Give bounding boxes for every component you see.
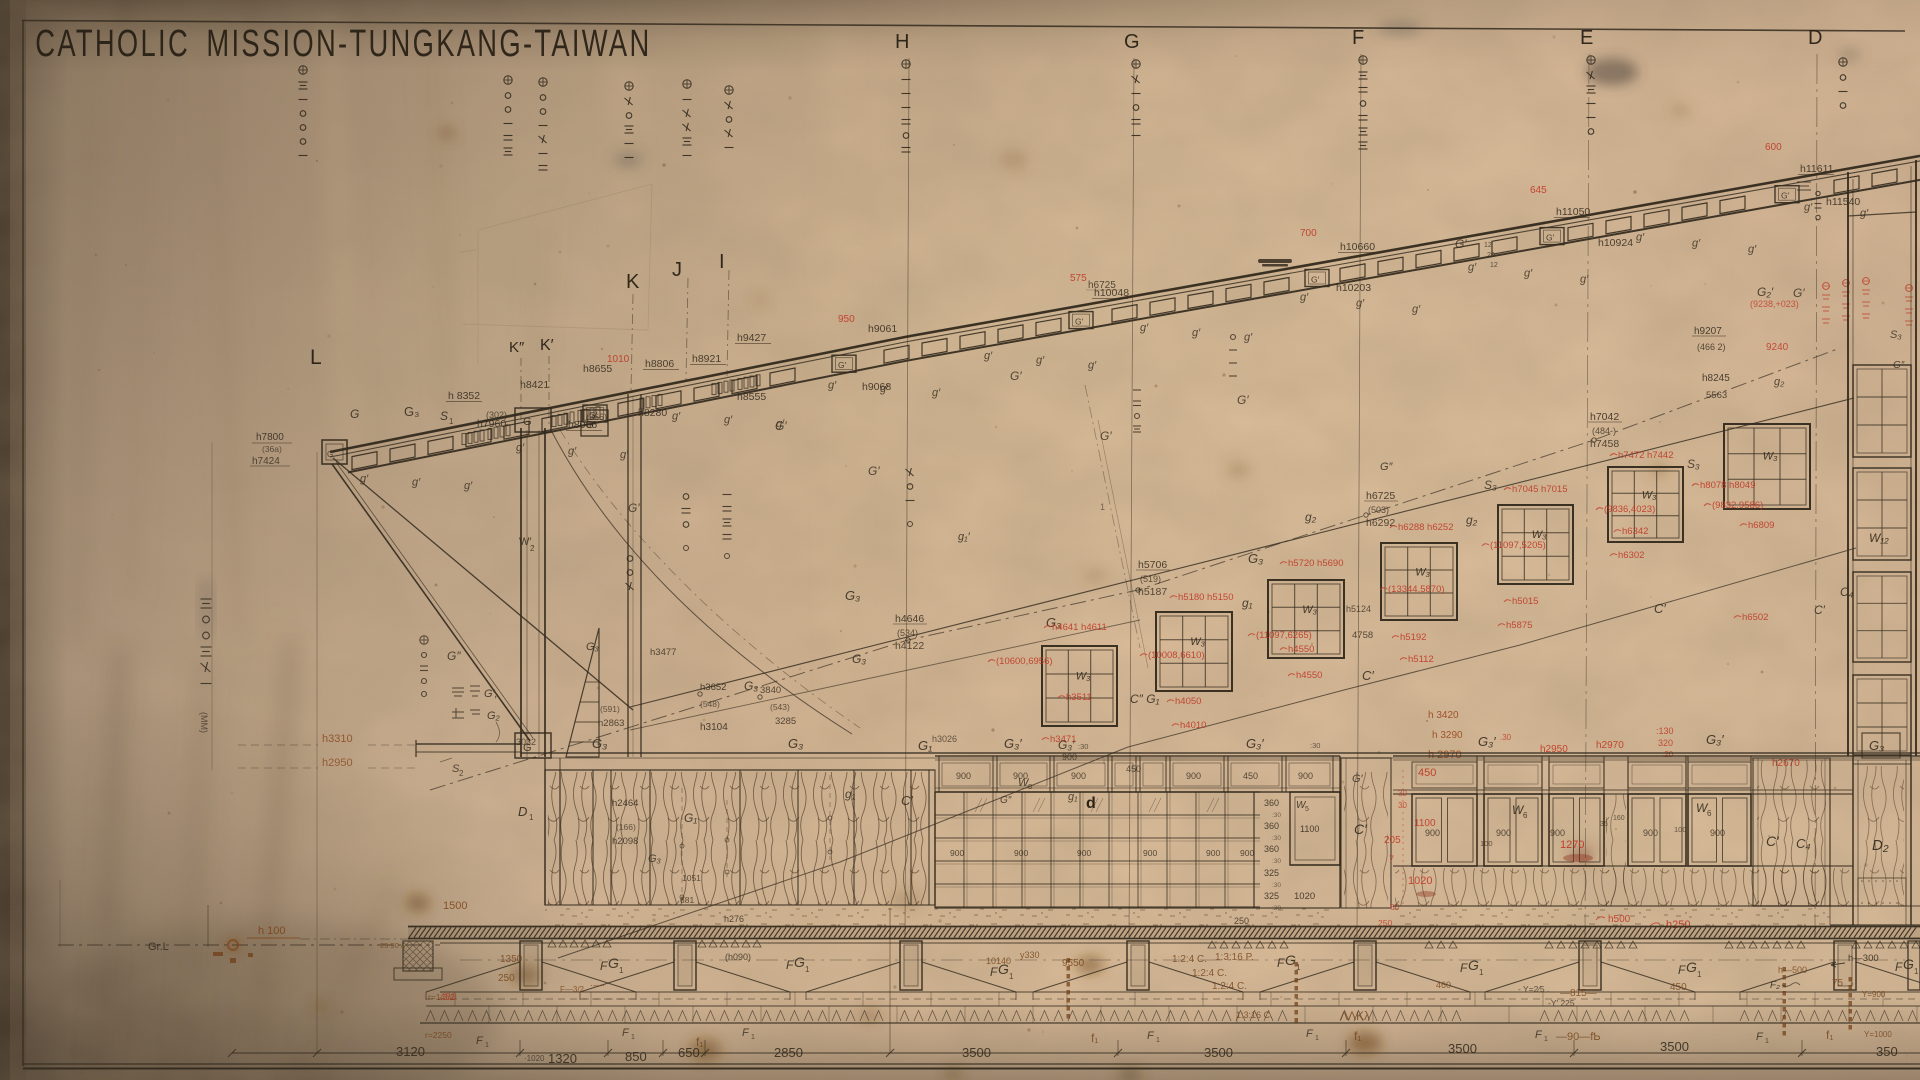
svg-text:10140: 10140: [986, 956, 1011, 966]
svg-text:G: G: [350, 407, 362, 421]
svg-text:h4550: h4550: [1296, 670, 1322, 681]
svg-text:g₂: g₂: [1466, 513, 1478, 527]
svg-text:3120: 3120: [396, 1044, 425, 1059]
svg-text:g′: g′: [1748, 244, 1757, 256]
svg-text:Y=1000: Y=1000: [1864, 1030, 1892, 1039]
svg-text:h11540: h11540: [1826, 196, 1860, 208]
svg-text:450: 450: [1418, 767, 1436, 779]
svg-text:6: 6: [1707, 809, 1712, 818]
svg-text:h4010: h4010: [1180, 720, 1206, 731]
svg-text:-Y′ 225: -Y′ 225: [1548, 998, 1575, 1008]
svg-text:G′: G′: [1010, 369, 1022, 383]
svg-text:W₁₂: W₁₂: [1869, 531, 1889, 545]
svg-text:g′: g′: [1636, 232, 1645, 244]
svg-text:G′: G′: [1311, 275, 1320, 285]
svg-text:G₃: G₃: [744, 679, 758, 693]
svg-text::30: :30: [1272, 812, 1281, 819]
svg-text:W₃: W₃: [1415, 566, 1430, 578]
svg-text:K: K: [626, 271, 640, 293]
svg-text:h10924: h10924: [1598, 237, 1633, 249]
svg-text:G: G: [523, 416, 532, 428]
svg-text:G₁: G₁: [918, 738, 932, 753]
svg-text:160: 160: [1613, 815, 1625, 822]
svg-text:1: 1: [619, 966, 624, 975]
svg-text:30: 30: [1398, 789, 1407, 798]
svg-text:(13344,5870): (13344,5870): [1388, 584, 1445, 595]
svg-text:681: 681: [680, 895, 694, 905]
svg-text:1100: 1100: [1414, 818, 1436, 829]
svg-text:h7424: h7424: [252, 456, 280, 467]
svg-text:450: 450: [1670, 982, 1687, 993]
svg-text:G′: G′: [1793, 286, 1805, 300]
svg-text:h9207: h9207: [1694, 326, 1722, 337]
svg-text:h9427: h9427: [737, 332, 766, 344]
svg-text:(MM): (MM): [199, 712, 209, 733]
svg-text:g₁: g₁: [845, 787, 856, 801]
svg-text:G″: G″: [447, 649, 461, 663]
svg-text:h8921: h8921: [692, 353, 721, 365]
svg-text:G′: G′: [868, 464, 880, 478]
svg-text:G′: G′: [1781, 191, 1790, 201]
svg-text:1: 1: [751, 1034, 755, 1041]
svg-text:C′: C′: [1354, 821, 1368, 837]
svg-text:(9836,4023): (9836,4023): [1604, 504, 1655, 515]
svg-text::30: :30: [1272, 835, 1281, 842]
svg-text:S₃: S₃: [1687, 457, 1700, 471]
svg-text:f₁: f₁: [1826, 1028, 1833, 1042]
svg-text:J: J: [672, 259, 682, 281]
svg-text:h6288 h6252: h6288 h6252: [1398, 522, 1453, 533]
svg-text:3840: 3840: [760, 685, 781, 696]
svg-text:(503): (503): [1368, 505, 1389, 515]
svg-text:12: 12: [1490, 262, 1498, 269]
svg-text:h5124: h5124: [1346, 604, 1371, 614]
svg-text:C₄: C₄: [1840, 585, 1854, 599]
svg-text:h8078 h8049: h8078 h8049: [1700, 480, 1755, 491]
svg-text:g′: g′: [1468, 262, 1477, 274]
svg-text:900: 900: [1186, 771, 1201, 781]
svg-text:G′: G′: [1100, 429, 1112, 443]
svg-text:450: 450: [1126, 764, 1141, 774]
svg-text:h5180 h5150: h5180 h5150: [1178, 592, 1233, 603]
svg-text:G: G: [586, 420, 594, 431]
svg-text:h5192: h5192: [1400, 632, 1426, 643]
svg-text:h7800: h7800: [256, 432, 284, 443]
svg-text:E: E: [1580, 27, 1593, 49]
svg-text:F: F: [1895, 960, 1903, 974]
svg-text:·1020: ·1020: [524, 1054, 545, 1063]
svg-text:G: G: [1686, 959, 1697, 975]
svg-text:F: F: [786, 958, 794, 972]
svg-text:g′: g′: [1244, 332, 1253, 344]
svg-text:g₁′: g₁′: [958, 531, 971, 543]
svg-text:h 2970: h 2970: [1428, 749, 1462, 761]
svg-text:1: 1: [1479, 968, 1484, 977]
svg-text:360: 360: [1264, 844, 1279, 854]
svg-text:h6725: h6725: [1366, 490, 1395, 502]
svg-text::30: :30: [1310, 741, 1320, 750]
svg-text:900: 900: [1643, 828, 1658, 838]
svg-text:1020: 1020: [1294, 891, 1315, 902]
svg-text:h3511: h3511: [1066, 692, 1092, 703]
svg-text:h7458: h7458: [1590, 438, 1619, 450]
svg-text:2: 2: [530, 544, 535, 553]
svg-text:1:3:16 P.: 1:3:16 P.: [1215, 952, 1254, 963]
svg-text:C′: C′: [901, 793, 913, 808]
svg-text:g′: g′: [1088, 359, 1097, 371]
svg-text:g′: g′: [984, 350, 993, 362]
svg-text:h7472 h7442: h7472 h7442: [1618, 450, 1673, 461]
svg-text:G₃′: G₃′: [1058, 738, 1075, 752]
svg-text:(519): (519): [1140, 574, 1161, 584]
svg-text:G: G: [1124, 31, 1140, 53]
svg-text:G₃′: G₃′: [1478, 734, 1496, 749]
svg-text:(302): (302): [486, 410, 507, 420]
svg-text:g′: g′: [1580, 274, 1589, 286]
svg-text:(548): (548): [700, 699, 720, 709]
svg-text:1: 1: [1156, 1037, 1160, 1044]
svg-text:12: 12: [1484, 242, 1492, 249]
svg-text:.30: .30: [1500, 733, 1512, 742]
svg-text:W₃: W₃: [1763, 451, 1778, 463]
svg-text:G₃′: G₃′: [1706, 732, 1724, 747]
svg-text:1: 1: [1100, 502, 1105, 512]
svg-text:g′: g′: [1524, 268, 1533, 280]
svg-text:G₃′: G₃′: [1246, 736, 1264, 751]
svg-text:G₂: G₂: [487, 710, 501, 722]
svg-text:900: 900: [1143, 848, 1157, 858]
svg-text:1: 1: [485, 1042, 489, 1049]
svg-text:F: F: [1277, 956, 1285, 970]
svg-text:900: 900: [1298, 771, 1313, 781]
svg-text:g′: g′: [1036, 355, 1045, 367]
svg-text:650: 650: [678, 1045, 700, 1060]
svg-text:7: 7: [1389, 854, 1394, 864]
svg-text:f₁: f₁: [1091, 1031, 1098, 1045]
svg-text:h4550: h4550: [1288, 644, 1314, 655]
svg-text:h6302: h6302: [1618, 550, 1644, 561]
svg-text:—90—fƄ: —90—fƄ: [1556, 1031, 1601, 1043]
svg-text:f₁: f₁: [1354, 1029, 1361, 1043]
svg-text:250: 250: [498, 973, 515, 984]
svg-text:h9068: h9068: [862, 381, 891, 393]
svg-text:450: 450: [440, 992, 457, 1003]
svg-text:h3477: h3477: [650, 647, 676, 658]
svg-text:8: 8: [1028, 782, 1032, 791]
svg-text:g₁: g₁: [1242, 596, 1253, 610]
svg-text:g₂: g₂: [1305, 510, 1317, 524]
svg-text:h8421: h8421: [520, 379, 549, 391]
svg-text:h—300: h—300: [1848, 953, 1879, 964]
svg-text:S₃: S₃: [1890, 329, 1902, 341]
svg-text:g′: g′: [1692, 238, 1701, 250]
svg-text:3500: 3500: [962, 1045, 991, 1060]
svg-text:G′: G′: [838, 360, 847, 370]
svg-text:g′: g′: [464, 480, 473, 492]
svg-text:h10203: h10203: [1336, 282, 1371, 294]
svg-text:h 3290: h 3290: [1432, 730, 1463, 741]
svg-text:h6502: h6502: [1742, 612, 1768, 623]
svg-text:G″: G″: [1380, 461, 1394, 473]
svg-text:900: 900: [950, 848, 964, 858]
svg-text:G: G: [608, 955, 619, 971]
svg-text:900: 900: [1071, 771, 1086, 781]
svg-text:F: F: [1352, 27, 1364, 49]
svg-text:1010: 1010: [607, 354, 630, 365]
svg-text:G₃: G₃: [404, 404, 419, 419]
svg-text:3285: 3285: [775, 716, 796, 727]
svg-text:1: 1: [631, 1034, 635, 1041]
svg-text:G′: G′: [1455, 237, 1467, 251]
svg-text:35: 35: [1600, 821, 1608, 828]
svg-text:h3104: h3104: [700, 722, 728, 733]
svg-text:4758: 4758: [1352, 630, 1373, 641]
svg-text:G₁: G₁: [684, 811, 697, 825]
svg-text:(166): (166): [616, 822, 636, 832]
svg-text:D: D: [1808, 27, 1822, 49]
svg-text:G′: G′: [1546, 233, 1555, 243]
svg-text:6: 6: [1523, 811, 1528, 820]
svg-text:C₄: C₄: [1796, 836, 1811, 851]
svg-text:1:2:4 C.: 1:2:4 C.: [1212, 981, 1247, 992]
svg-text:1: 1: [1009, 972, 1014, 981]
svg-text:g′: g′: [1804, 202, 1813, 214]
svg-text:(9238,+023): (9238,+023): [1750, 299, 1799, 309]
svg-text:g′: g′: [1300, 292, 1309, 304]
svg-text:1:2:4 C.: 1:2:4 C.: [1192, 968, 1227, 979]
svg-text:h11050: h11050: [1556, 206, 1590, 218]
svg-text:9550: 9550: [1062, 958, 1085, 969]
svg-text:(10008,6610): (10008,6610): [1148, 650, 1205, 661]
svg-text:3500: 3500: [1660, 1039, 1689, 1054]
svg-text:1: 1: [1765, 1038, 1769, 1045]
svg-text:C′: C′: [1814, 603, 1826, 617]
svg-text:F: F: [600, 959, 608, 973]
svg-text:Gr.L: Gr.L: [148, 941, 169, 953]
svg-text:G₃: G₃: [852, 652, 866, 666]
svg-text:G″: G″: [1000, 795, 1012, 806]
svg-text:D₂: D₂: [1872, 837, 1889, 854]
svg-text:1270: 1270: [1560, 839, 1584, 851]
svg-text:1: 1: [805, 965, 810, 974]
svg-text:g′: g′: [412, 477, 421, 489]
svg-text:900: 900: [1496, 828, 1511, 838]
svg-text:(484-): (484-): [1592, 426, 1616, 436]
svg-text:W₃: W₃: [1076, 671, 1091, 683]
svg-text:G: G: [1285, 952, 1296, 968]
svg-text:h3310: h3310: [322, 733, 353, 745]
svg-text:g′: g′: [1860, 208, 1869, 220]
svg-text:850: 850: [625, 1049, 647, 1064]
svg-text:(10600,6956): (10600,6956): [996, 656, 1053, 667]
svg-text:F: F: [1460, 961, 1468, 975]
svg-text:950: 950: [838, 314, 855, 325]
svg-text:1: 1: [1544, 1036, 1548, 1043]
svg-text:g₂: g₂: [1774, 376, 1785, 388]
svg-text:900: 900: [1206, 848, 1220, 858]
svg-text:h5875: h5875: [1506, 620, 1532, 631]
svg-text:25 90 /₁: 25 90 /₁: [380, 941, 406, 950]
svg-text:1: 1: [449, 417, 454, 426]
svg-text:G′: G′: [1075, 317, 1084, 327]
svg-text::30: :30: [1272, 882, 1281, 889]
svg-text:G₃: G₃: [586, 641, 600, 653]
svg-text:h11611: h11611: [1800, 163, 1834, 175]
svg-text:h2970: h2970: [1596, 740, 1624, 751]
svg-text:75: 75: [1832, 978, 1844, 989]
svg-text:CATHOLIC MISSION-TUNGKANG-TAIW: CATHOLIC MISSION-TUNGKANG-TAIWAN: [35, 23, 651, 65]
svg-text:G″: G″: [1893, 360, 1905, 371]
svg-text:h5187: h5187: [1138, 586, 1167, 598]
svg-text:320: 320: [1658, 738, 1673, 748]
svg-text:900: 900: [1240, 848, 1254, 858]
svg-text:360: 360: [1264, 821, 1279, 831]
svg-text:(466 2): (466 2): [1697, 342, 1726, 352]
svg-text:h2098: h2098: [612, 836, 638, 847]
svg-text:h7042: h7042: [1590, 411, 1619, 423]
svg-text:G₃: G₃: [592, 736, 607, 751]
svg-text:ΛΛΚλ: ΛΛΚλ: [1340, 1009, 1370, 1023]
svg-text:1: 1: [529, 813, 534, 822]
svg-text:h500: h500: [1608, 914, 1631, 925]
svg-text:F: F: [1678, 963, 1686, 977]
svg-text::30: :30: [1078, 742, 1088, 751]
svg-text:I: I: [719, 251, 725, 273]
svg-text:100: 100: [1674, 825, 1687, 834]
svg-text:(534): (534): [897, 628, 918, 638]
svg-text:(h090): (h090): [725, 952, 751, 962]
svg-text:h5015: h5015: [1512, 596, 1538, 607]
svg-text::30: :30: [1272, 858, 1281, 865]
svg-text:h10660: h10660: [1340, 241, 1375, 253]
svg-text:h8555: h8555: [737, 391, 766, 403]
svg-text::130: :130: [1656, 726, 1674, 736]
svg-text:1320: 1320: [548, 1051, 577, 1066]
svg-text:h4050: h4050: [1175, 696, 1201, 707]
svg-text:g′: g′: [568, 445, 577, 457]
svg-text:1:3:16 C.: 1:3:16 C.: [1236, 1010, 1273, 1020]
svg-text:2: 2: [459, 769, 464, 778]
svg-text:h5112: h5112: [1408, 654, 1434, 665]
svg-text:G′: G′: [1352, 773, 1364, 785]
svg-text:h2950: h2950: [322, 757, 353, 769]
svg-text:F: F: [990, 965, 998, 979]
svg-text:L: L: [310, 346, 322, 369]
svg-text:G₃: G₃: [1869, 738, 1884, 753]
svg-text:(543): (543): [770, 702, 790, 712]
svg-text:h7045 h7015: h7045 h7015: [1512, 484, 1567, 495]
svg-text:h2863: h2863: [598, 718, 624, 729]
svg-text:1: 1: [1914, 967, 1919, 976]
svg-text:h 8352: h 8352: [448, 390, 480, 402]
svg-text:h3652: h3652: [700, 682, 726, 693]
svg-text:G₃: G₃: [788, 736, 803, 751]
svg-text:Y=900: Y=900: [1862, 990, 1886, 999]
svg-text:C′: C′: [1362, 668, 1374, 683]
svg-text:1500: 1500: [443, 900, 467, 912]
svg-text:h3026: h3026: [932, 734, 957, 744]
svg-text:G′: G′: [327, 450, 335, 459]
svg-text:G: G: [1468, 957, 1479, 973]
svg-text:- Y=2⁄5 .: - Y=2⁄5 .: [1518, 984, 1549, 994]
svg-text:F—3/2: F—3/2: [560, 985, 585, 994]
svg-text:2850: 2850: [774, 1045, 803, 1060]
svg-text:450: 450: [1243, 771, 1258, 781]
svg-text:20: 20: [1487, 252, 1495, 259]
svg-text:900: 900: [1425, 828, 1440, 838]
svg-text:C″ G₁: C″ G₁: [1130, 692, 1160, 706]
svg-text:F₂: F₂: [1770, 980, 1780, 991]
svg-text:D: D: [518, 804, 527, 819]
svg-text:360: 360: [1264, 798, 1279, 808]
svg-text:G′: G′: [775, 419, 787, 433]
svg-text:h6725: h6725: [1088, 280, 1116, 291]
svg-text:h6809: h6809: [1748, 520, 1774, 531]
svg-text:h8806: h8806: [645, 358, 674, 370]
svg-text:h6342: h6342: [1622, 526, 1648, 537]
svg-text:h5720 h5690: h5720 h5690: [1288, 558, 1343, 569]
svg-text:h2464: h2464: [612, 798, 638, 809]
svg-text:G₃: G₃: [845, 588, 860, 603]
svg-text:C′: C′: [1654, 601, 1666, 616]
svg-text:1: 1: [1697, 970, 1702, 979]
svg-text:C′: C′: [1766, 833, 1780, 849]
svg-text:g′: g′: [932, 387, 941, 399]
svg-text:(11097,6265): (11097,6265): [1256, 630, 1312, 641]
svg-text:K″: K″: [509, 339, 525, 356]
svg-text:h 3420: h 3420: [1428, 710, 1459, 721]
svg-text:5: 5: [1305, 806, 1309, 813]
svg-text:325: 325: [1264, 868, 1279, 878]
svg-text:K′: K′: [540, 337, 554, 354]
svg-text:W₃: W₃: [1302, 604, 1317, 616]
svg-text:g₁: g₁: [1068, 791, 1078, 803]
svg-text:h—500: h—500: [1778, 965, 1807, 975]
svg-text:(11097,5205): (11097,5205): [1490, 540, 1546, 551]
svg-text:1: 1: [1315, 1035, 1319, 1042]
svg-text:⇧: ⇧: [1101, 758, 1107, 766]
svg-text:900: 900: [1062, 752, 1077, 762]
svg-text:700: 700: [1300, 228, 1317, 239]
svg-text:G′,: G′,: [484, 688, 498, 700]
svg-text:1350: 1350: [500, 954, 523, 965]
svg-text:645: 645: [1530, 185, 1547, 196]
svg-text:g′: g′: [1192, 327, 1201, 339]
svg-text:h5706: h5706: [1138, 559, 1167, 571]
svg-text:g′: g′: [672, 411, 681, 423]
svg-text:100: 100: [1480, 839, 1493, 848]
svg-text:g′: g′: [360, 473, 369, 485]
svg-text:h8245: h8245: [1702, 373, 1730, 384]
svg-text:h 100: h 100: [258, 925, 286, 937]
svg-text:G: G: [794, 954, 805, 970]
svg-text:1:2:4 C.: 1:2:4 C.: [1172, 954, 1207, 965]
svg-text:d: d: [1086, 795, 1096, 812]
svg-text:9240: 9240: [1766, 342, 1789, 353]
svg-text:900: 900: [1077, 848, 1091, 858]
svg-text:G₃: G₃: [1248, 551, 1263, 566]
svg-text:325: 325: [1264, 891, 1279, 901]
svg-text:G₃′: G₃′: [1004, 736, 1022, 751]
svg-text:(591): (591): [600, 704, 620, 714]
svg-text:350: 350: [1876, 1044, 1898, 1059]
svg-text:205: 205: [1384, 835, 1401, 846]
svg-text:h9061: h9061: [868, 323, 897, 335]
svg-text:3500: 3500: [1204, 1045, 1233, 1060]
svg-text:(36a): (36a): [262, 444, 282, 454]
svg-text:G: G: [1903, 956, 1914, 972]
svg-text:G₃: G₃: [648, 853, 662, 865]
